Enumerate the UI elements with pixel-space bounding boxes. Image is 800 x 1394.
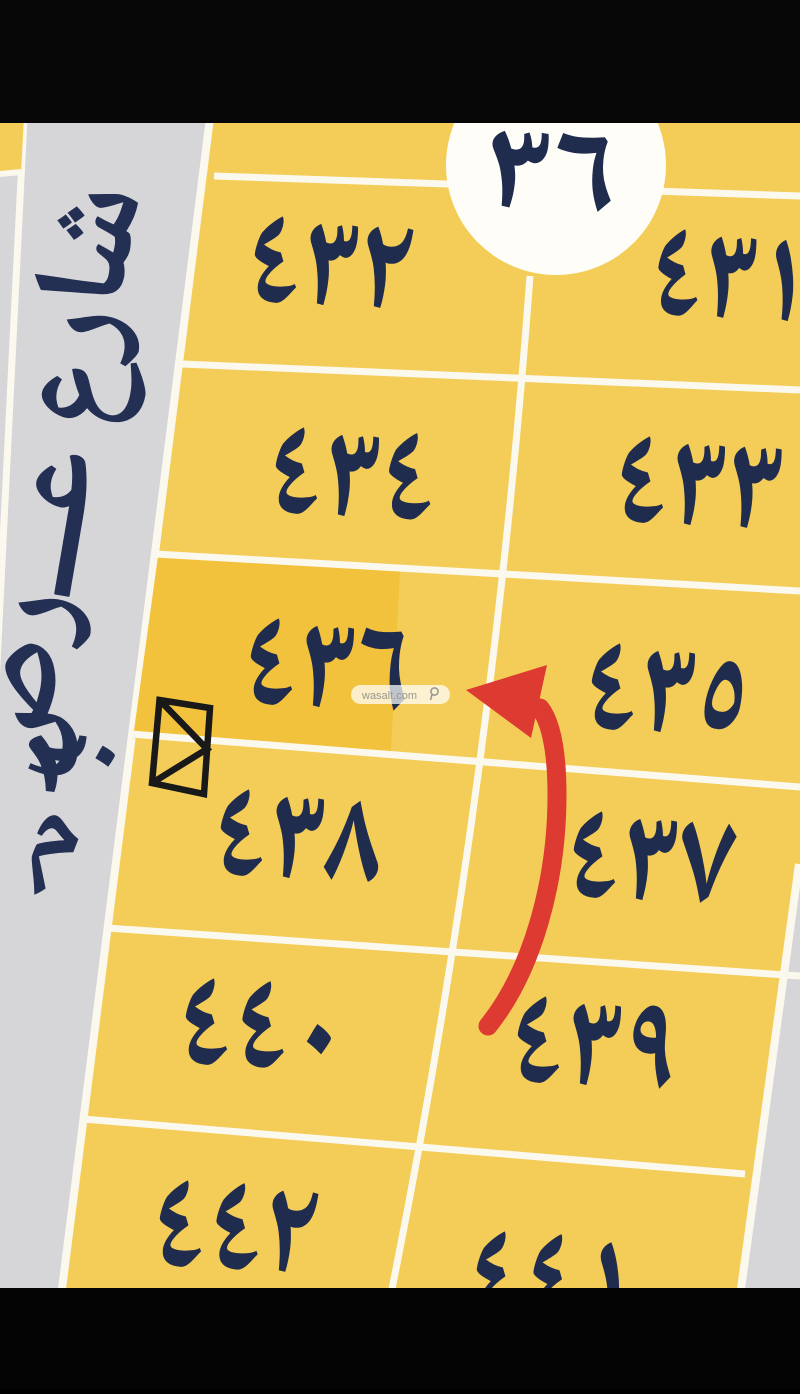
svg-text:wasalt.com: wasalt.com	[361, 690, 417, 702]
